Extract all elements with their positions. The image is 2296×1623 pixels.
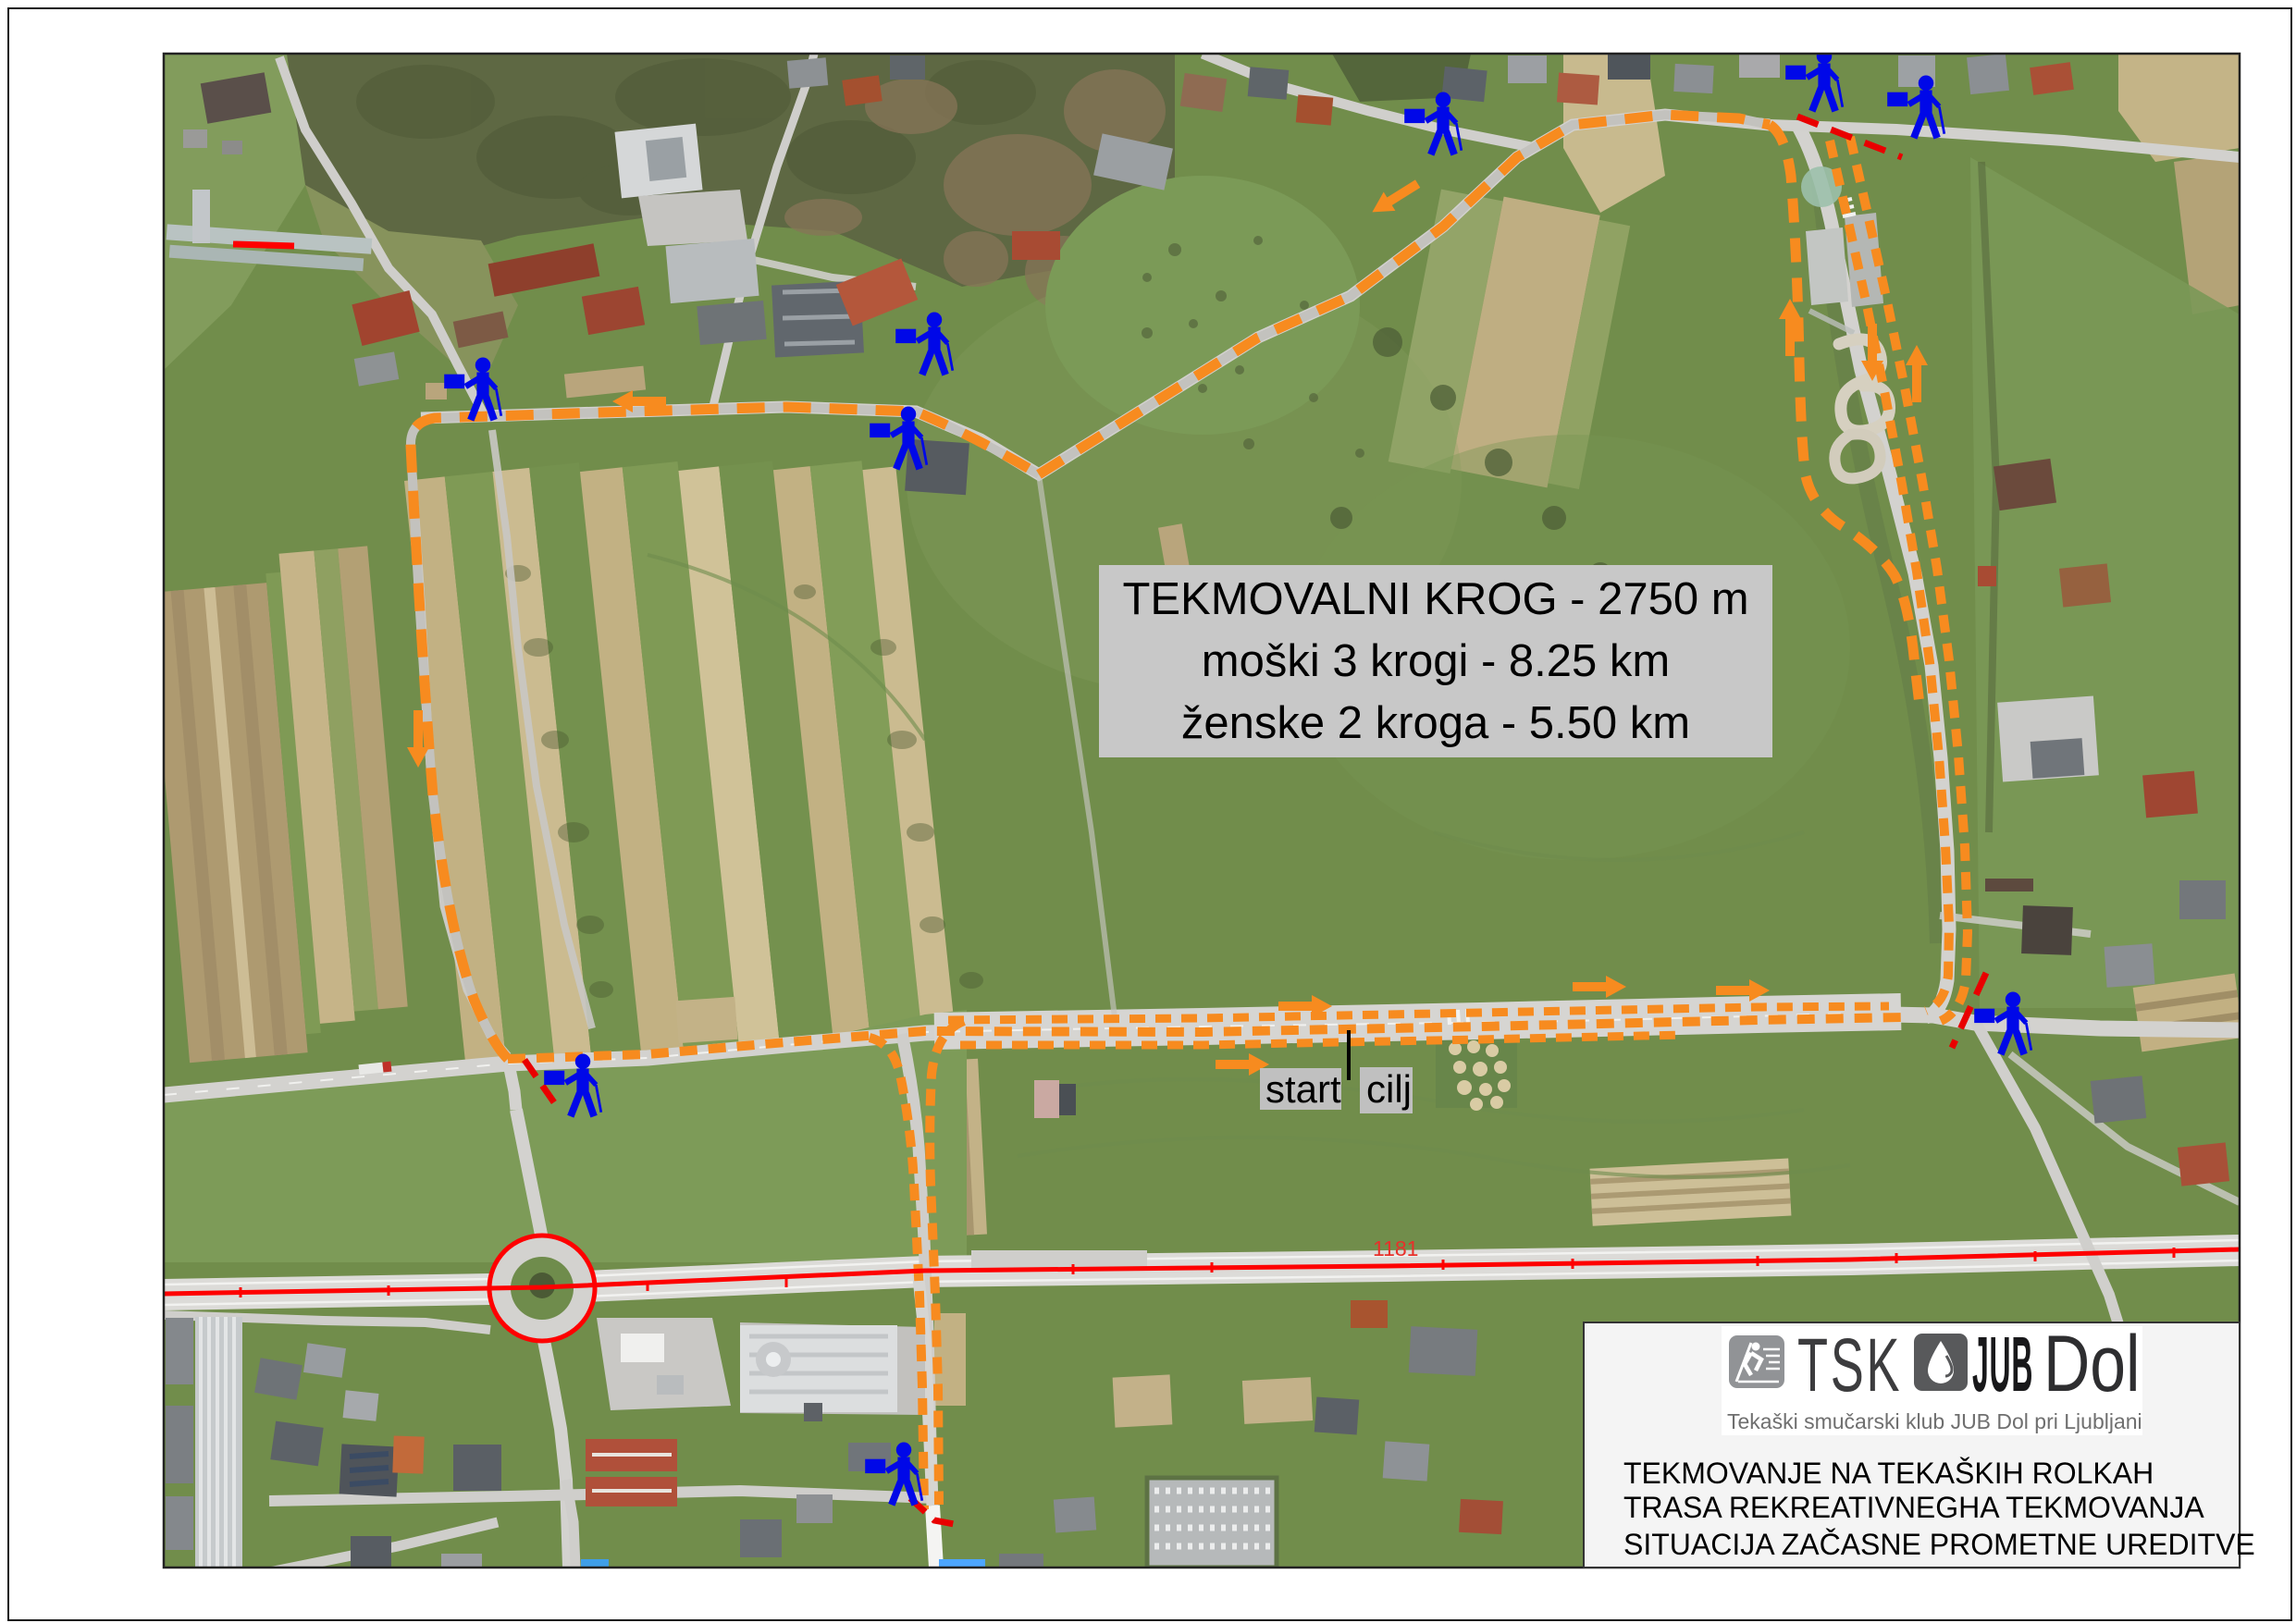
svg-text:JUB: JUB — [1972, 1322, 2033, 1408]
svg-text:start: start — [1265, 1067, 1341, 1111]
svg-text:Tekaški smučarski klub JUB Do: Tekaški smučarski klub JUB Dol pri Ljubl… — [1727, 1409, 2142, 1433]
svg-text:SITUACIJA ZAČASNE PROMETNE URE: SITUACIJA ZAČASNE PROMETNE UREDITVE — [1623, 1528, 2255, 1561]
svg-text:ženske 2 kroga - 5.50 km: ženske 2 kroga - 5.50 km — [1181, 698, 1690, 748]
svg-text:Dol: Dol — [2043, 1319, 2141, 1408]
svg-text:cilj: cilj — [1366, 1067, 1412, 1111]
svg-text:moški 3 krogi - 8.25 km: moški 3 krogi - 8.25 km — [1202, 636, 1671, 686]
svg-text:1181: 1181 — [1373, 1236, 1418, 1260]
svg-text:TSK: TSK — [1797, 1322, 1902, 1408]
svg-text:TEKMOVALNI KROG - 2750 m: TEKMOVALNI KROG - 2750 m — [1122, 574, 1748, 624]
svg-text:TRASA REKREATIVNEGHA TEKMOVANJ: TRASA REKREATIVNEGHA TEKMOVANJA — [1623, 1491, 2204, 1524]
svg-text:TEKMOVANJE NA TEKAŠKIH ROLKAH: TEKMOVANJE NA TEKAŠKIH ROLKAH — [1623, 1457, 2154, 1490]
